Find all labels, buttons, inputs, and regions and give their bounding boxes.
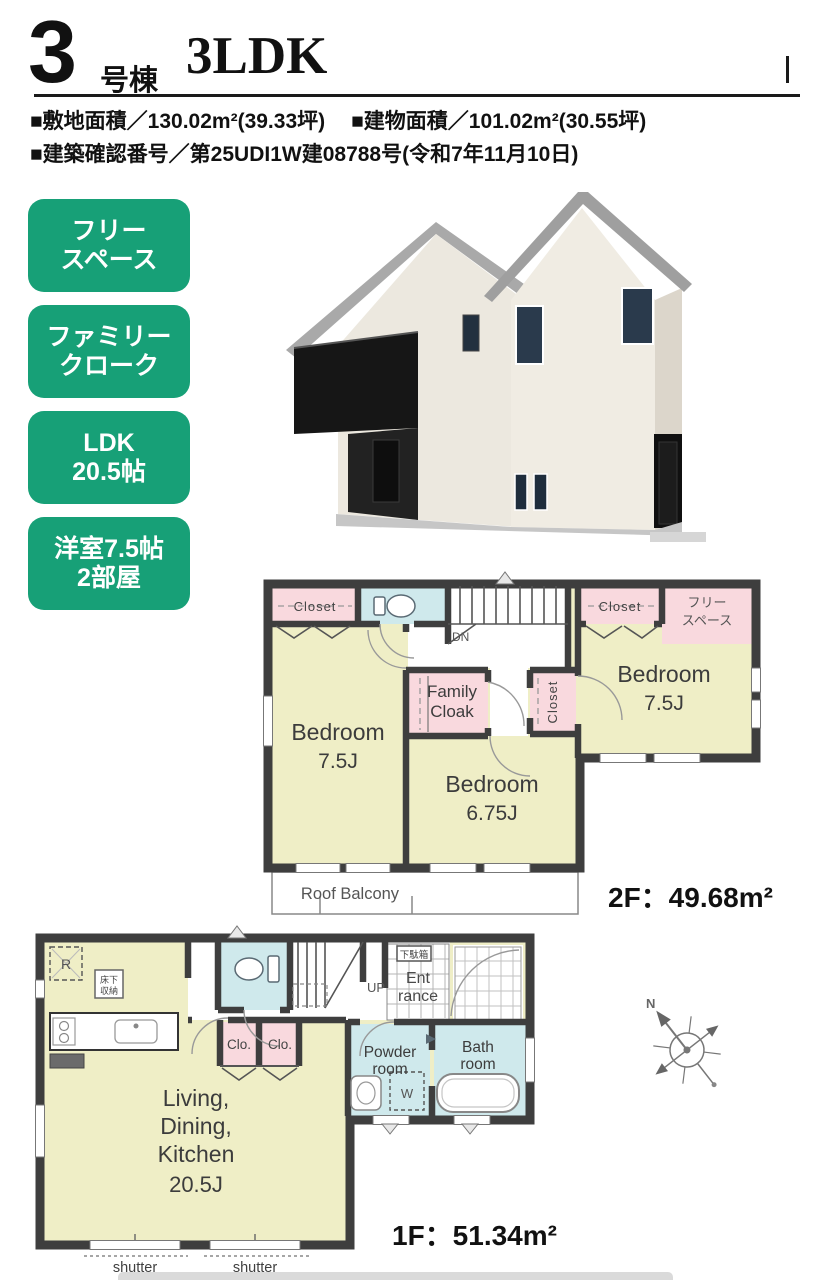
bedroom-center-size: 6.75J (466, 802, 517, 825)
2f-closet-right-label: Closet (599, 599, 642, 614)
bathtub (437, 1074, 519, 1112)
closet2-label: Clo. (268, 1037, 292, 1052)
accent-window (373, 440, 399, 502)
floor-plan-2f: Closet Closet フリー スペース DN Bedroom 7.5J F… (262, 564, 762, 923)
1f-stairs-label: UP (367, 980, 385, 995)
2f-area-label: 2F：49.68m² (608, 876, 773, 916)
badge-bedrooms: 洋室7.5帖 2部屋 (28, 517, 190, 610)
2f-stairs-label: DN (452, 630, 469, 644)
porch-step (650, 532, 706, 542)
closet1-label: Clo. (227, 1037, 251, 1052)
header-divider (34, 94, 800, 97)
2f-corridor (490, 668, 528, 736)
building-area: ■建物面積／101.02m²(30.55坪) (351, 110, 646, 133)
entrance-door (659, 442, 677, 524)
cupboard (50, 1054, 84, 1068)
window-upper-right (622, 288, 653, 344)
compass-north-label: N (646, 996, 655, 1011)
rear-window (463, 315, 479, 351)
entrance-label-2: rance (398, 988, 438, 1005)
bedroom-left-size: 7.5J (318, 750, 358, 773)
ldk-label-4: 20.5J (169, 1172, 223, 1197)
vent-mark (496, 572, 514, 584)
house-exterior-render (278, 182, 722, 574)
unit-number: 3 (28, 8, 74, 96)
layout-type: 3LDK (186, 26, 327, 86)
unit-number-suffix: 号棟 (100, 57, 158, 99)
family-cloak-label-2: Cloak (430, 702, 474, 721)
header-tick-mark (786, 56, 789, 83)
entrance-label-1: Ent (406, 970, 431, 987)
site-area: ■敷地面積／130.02m²(39.33坪) (30, 110, 325, 133)
ldk-label-1: Living, (163, 1085, 229, 1111)
2f-free-space-label-2: スペース (682, 613, 732, 628)
badge-ldk-size: LDK 20.5帖 (28, 411, 190, 504)
property-areas-line: ■敷地面積／130.02m²(39.33坪)■建物面積／101.02m²(30.… (30, 105, 672, 135)
vent-mark (228, 926, 246, 938)
bath-label-2: room (460, 1056, 495, 1073)
bedroom-right-size: 7.5J (644, 692, 684, 715)
vent-mark-3 (462, 1124, 478, 1134)
vent-mark-2 (382, 1124, 398, 1134)
family-cloak-label-1: Family (427, 682, 478, 701)
bedroom-right-name: Bedroom (617, 661, 710, 687)
window-small-1 (515, 474, 527, 510)
ldk-label-2: Dining, (160, 1113, 232, 1139)
toilet-icon (235, 956, 279, 982)
permit-line: ■建築確認番号／第25UDI1W建08788号(令和7年11月10日) (30, 138, 578, 168)
bedroom-left-name: Bedroom (291, 719, 384, 745)
powder-label-1: Powder (364, 1044, 417, 1061)
toilet-icon (374, 595, 415, 617)
roof-balcony-label: Roof Balcony (301, 885, 400, 903)
2f-free-space-label-1: フリー (687, 595, 726, 610)
window-small-2 (534, 474, 547, 510)
2f-hall (408, 624, 568, 668)
1f-area-label: 1F：51.34m² (392, 1214, 557, 1254)
fridge-label: R (61, 956, 71, 972)
shoe-box-label: 下駄箱 (400, 949, 429, 961)
2f-closet-left-label: Closet (294, 599, 337, 614)
badge-free-space: フリー スペース (28, 199, 190, 292)
floor-storage-label-1: 床下 (100, 974, 118, 985)
bedroom-center-name: Bedroom (445, 771, 538, 797)
floor-storage-label-2: 収納 (100, 985, 118, 996)
washer-label: W (401, 1086, 414, 1101)
bottom-page-strip (118, 1272, 673, 1280)
window-upper-left (516, 306, 543, 364)
balcony-accent (294, 332, 418, 434)
ldk-label-3: Kitchen (158, 1141, 235, 1167)
badge-family-cloak: ファミリー クローク (28, 305, 190, 398)
2f-closet-mid-label: Closet (545, 681, 560, 724)
flyer-page: 3 号棟 3LDK ■敷地面積／130.02m²(39.33坪)■建物面積／10… (0, 0, 813, 1280)
powder-label-2: room (372, 1061, 407, 1078)
bath-label-1: Bath (462, 1039, 494, 1056)
feature-badges: フリー スペース ファミリー クローク LDK 20.5帖 洋室7.5帖 2部屋 (28, 199, 190, 610)
compass-rose: N (640, 992, 740, 1100)
